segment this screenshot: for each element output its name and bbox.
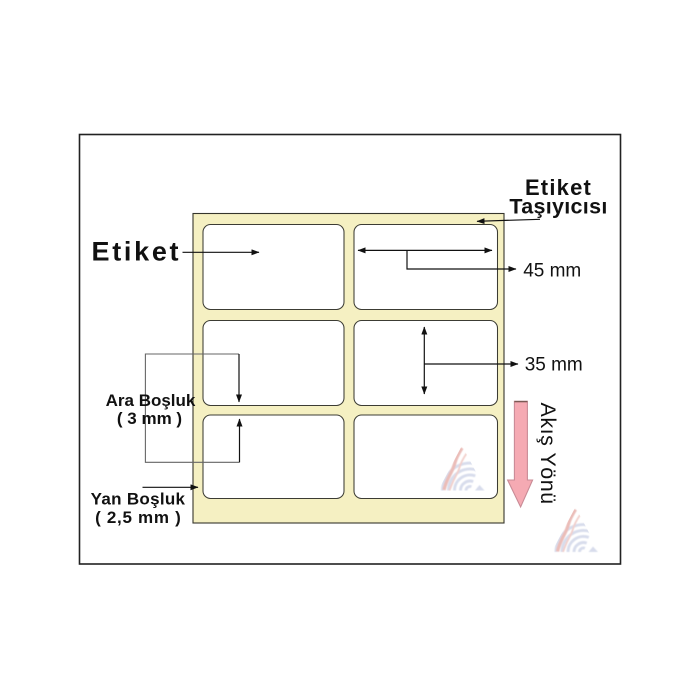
svg-text:Akış Yönü: Akış Yönü bbox=[536, 403, 560, 505]
svg-text:( 3 mm ): ( 3 mm ) bbox=[117, 409, 182, 428]
svg-text:Etiket: Etiket bbox=[92, 237, 182, 267]
svg-text:Taşıyıcısı: Taşıyıcısı bbox=[509, 194, 607, 218]
svg-text:35 mm: 35 mm bbox=[525, 354, 583, 375]
svg-text:45 mm: 45 mm bbox=[523, 260, 581, 281]
svg-text:Ara Boşluk: Ara Boşluk bbox=[106, 391, 196, 410]
svg-text:Yan Boşluk: Yan Boşluk bbox=[91, 489, 186, 508]
svg-text:( 2,5 mm ): ( 2,5 mm ) bbox=[95, 508, 181, 527]
